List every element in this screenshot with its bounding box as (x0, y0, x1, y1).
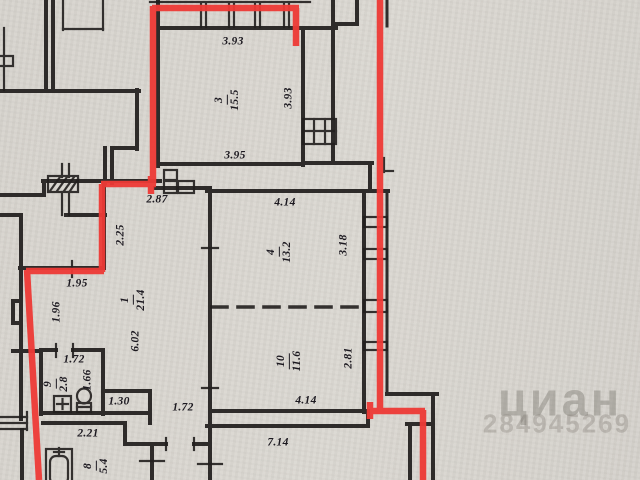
dim-entry-width: 2.87 (146, 194, 167, 206)
left-edge-notch (0, 56, 13, 66)
dim-room10-right: 2.81 (343, 347, 355, 368)
room-area: 2.8 (57, 376, 71, 391)
room-number: 10 (275, 353, 290, 369)
dim-bath-top: 2.21 (77, 428, 98, 440)
floor-plan-page: 3.93 3.93 3.95 2.87 4.14 3.18 2.25 1.95 … (0, 0, 640, 480)
sink-icon (54, 396, 71, 412)
dim-hall-length: 6.02 (130, 330, 142, 351)
room-label-3: 3 15.5 (213, 89, 241, 110)
room-area: 11.6 (290, 351, 304, 372)
toilet-icon (77, 389, 91, 413)
dim-corridor-b: 1.72 (172, 402, 193, 414)
room-number: 3 (213, 95, 228, 105)
room-label-1: 1 21.4 (119, 289, 147, 310)
dim-room10-bottom: 4.14 (295, 395, 316, 407)
dim-room4-right: 3.18 (338, 234, 350, 255)
dim-room4-top: 4.14 (274, 197, 295, 209)
dim-room3-bottom: 3.95 (224, 150, 245, 162)
room-number: 1 (119, 295, 134, 305)
dim-wc-top: 1.72 (63, 354, 84, 366)
bathtub-icon (46, 448, 72, 480)
room-number: 4 (265, 247, 280, 257)
room-label-8: 8 5.4 (82, 458, 110, 473)
room-label-10: 10 11.6 (275, 351, 303, 372)
room-area: 5.4 (97, 458, 111, 473)
dim-hall-width: 1.95 (66, 278, 87, 290)
dim-hall-left: 1.96 (51, 301, 63, 322)
room-area: 13.2 (280, 241, 294, 262)
dim-outer-bottom: 7.14 (267, 437, 288, 449)
room-number: 9 (42, 379, 57, 389)
room-label-9: 9 2.8 (42, 376, 70, 391)
dim-room3-top: 3.93 (222, 36, 243, 48)
room-label-4: 4 13.2 (265, 241, 293, 262)
dim-corridor-a: 1.30 (108, 396, 129, 408)
room-area: 21.4 (134, 289, 148, 310)
window-bars (364, 217, 387, 350)
cian-watermark-id: 284945269 (483, 409, 631, 440)
room-number: 8 (82, 461, 97, 471)
dim-wc-right: 1.66 (82, 369, 94, 390)
dim-room3-right: 3.93 (283, 87, 295, 108)
dim-hall-upper: 2.25 (115, 224, 127, 245)
hatched-shaft (48, 164, 78, 215)
room-area: 15.5 (228, 89, 242, 110)
